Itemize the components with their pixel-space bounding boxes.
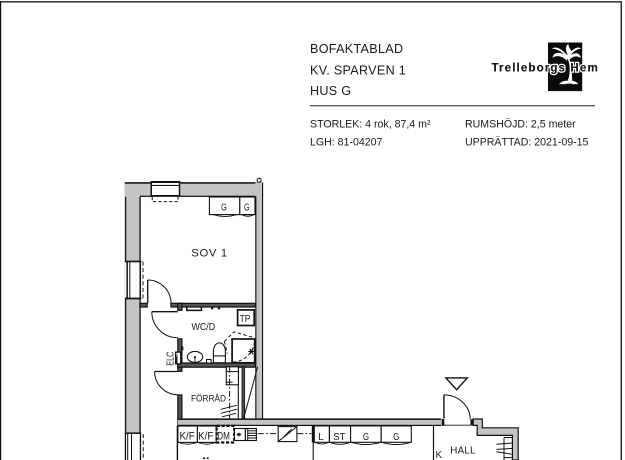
svg-text:G: G [393, 432, 399, 443]
svg-text:K/F: K/F [198, 431, 213, 443]
svg-text:WC/D: WC/D [192, 322, 216, 333]
svg-text:ELC: ELC [166, 351, 177, 366]
svg-text:SOV 1: SOV 1 [191, 248, 227, 260]
svg-text:HUS G: HUS G [310, 84, 351, 98]
svg-text:LGH: 81-04207: LGH: 81-04207 [310, 136, 383, 148]
svg-text:G: G [221, 203, 227, 214]
svg-text:FÖRRÅD: FÖRRÅD [191, 393, 226, 404]
svg-text:BOFAKTABLAD: BOFAKTABLAD [310, 42, 403, 56]
svg-text:UPPRÄTTAD: 2021-09-15: UPPRÄTTAD: 2021-09-15 [465, 136, 589, 148]
svg-text:G: G [244, 203, 250, 214]
svg-text:RUMSHÖJD: 2,5 meter: RUMSHÖJD: 2,5 meter [465, 119, 576, 131]
svg-text:K: K [436, 450, 443, 460]
svg-text:Trelleborgs Hem: Trelleborgs Hem [492, 62, 599, 75]
svg-text:G: G [363, 432, 369, 443]
svg-text:K/F: K/F [180, 431, 195, 443]
svg-text:TP: TP [240, 314, 251, 325]
svg-text:STORLEK: 4 rok, 87,4 m²: STORLEK: 4 rok, 87,4 m² [310, 119, 431, 131]
svg-text:DM: DM [217, 431, 230, 443]
svg-text:ST: ST [333, 432, 346, 443]
svg-text:HALL: HALL [450, 445, 476, 456]
svg-text:L: L [318, 432, 324, 443]
svg-text:KV. SPARVEN 1: KV. SPARVEN 1 [310, 64, 406, 78]
